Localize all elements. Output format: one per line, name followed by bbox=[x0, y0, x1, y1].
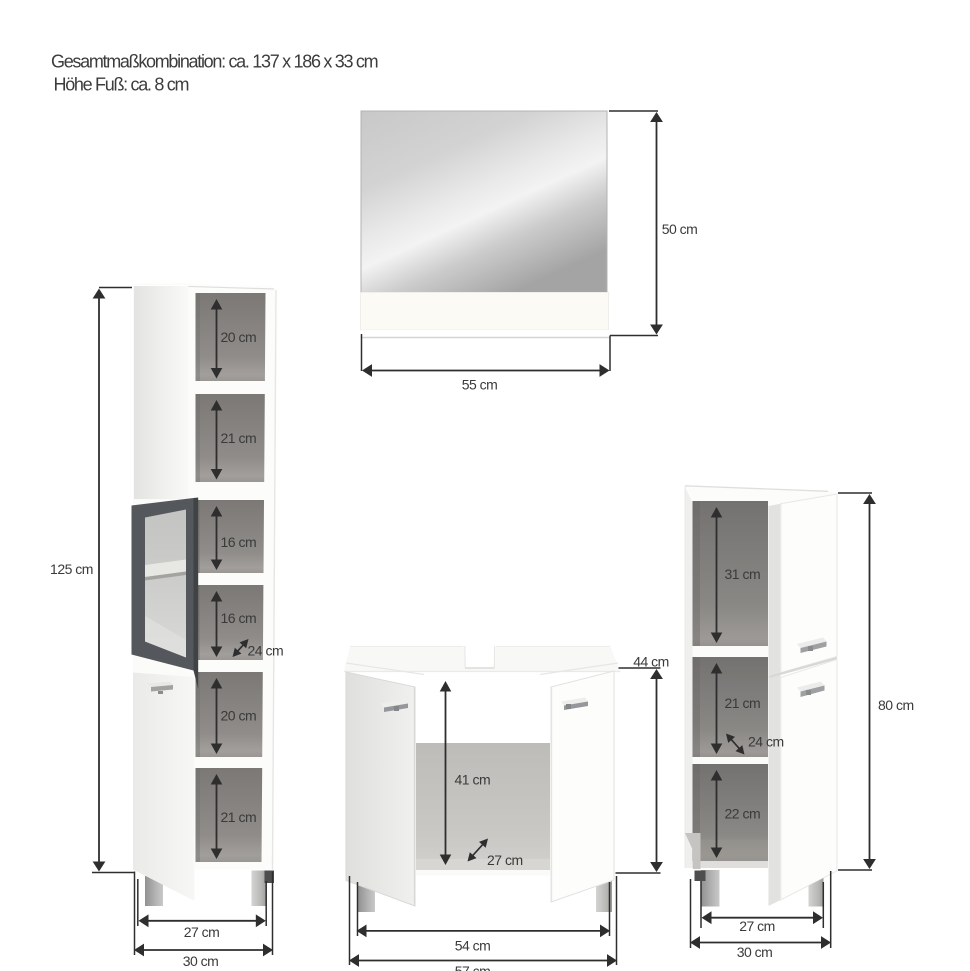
svg-text:54 cm: 54 cm bbox=[455, 938, 491, 954]
svg-text:20 cm: 20 cm bbox=[221, 329, 257, 345]
svg-text:50 cm: 50 cm bbox=[662, 221, 698, 237]
svg-text:30 cm: 30 cm bbox=[737, 944, 773, 960]
svg-text:27 cm: 27 cm bbox=[739, 918, 775, 934]
svg-text:21 cm: 21 cm bbox=[725, 695, 761, 711]
svg-text:41 cm: 41 cm bbox=[455, 772, 491, 788]
svg-text:16 cm: 16 cm bbox=[221, 534, 257, 550]
svg-text:16 cm: 16 cm bbox=[221, 610, 257, 626]
svg-text:30 cm: 30 cm bbox=[183, 953, 219, 969]
svg-text:21 cm: 21 cm bbox=[221, 430, 257, 446]
svg-text:24 cm: 24 cm bbox=[248, 643, 284, 659]
svg-text:27 cm: 27 cm bbox=[487, 852, 523, 868]
svg-text:Gesamtmaßkombination: ca. 137: Gesamtmaßkombination: ca. 137 x 186 x 33… bbox=[51, 52, 378, 72]
svg-text:31 cm: 31 cm bbox=[725, 566, 761, 582]
svg-text:27 cm: 27 cm bbox=[184, 924, 220, 940]
svg-text:55 cm: 55 cm bbox=[462, 377, 498, 393]
svg-text:125 cm: 125 cm bbox=[50, 561, 93, 577]
svg-text:24 cm: 24 cm bbox=[748, 734, 784, 750]
svg-text:Höhe Fuß: ca. 8 cm: Höhe Fuß: ca. 8 cm bbox=[54, 75, 189, 95]
svg-text:22 cm: 22 cm bbox=[725, 806, 761, 822]
svg-text:20 cm: 20 cm bbox=[221, 708, 257, 724]
svg-text:21 cm: 21 cm bbox=[221, 809, 257, 825]
svg-text:80 cm: 80 cm bbox=[878, 697, 914, 713]
svg-text:57 cm: 57 cm bbox=[455, 963, 491, 971]
svg-text:44 cm: 44 cm bbox=[633, 654, 669, 670]
